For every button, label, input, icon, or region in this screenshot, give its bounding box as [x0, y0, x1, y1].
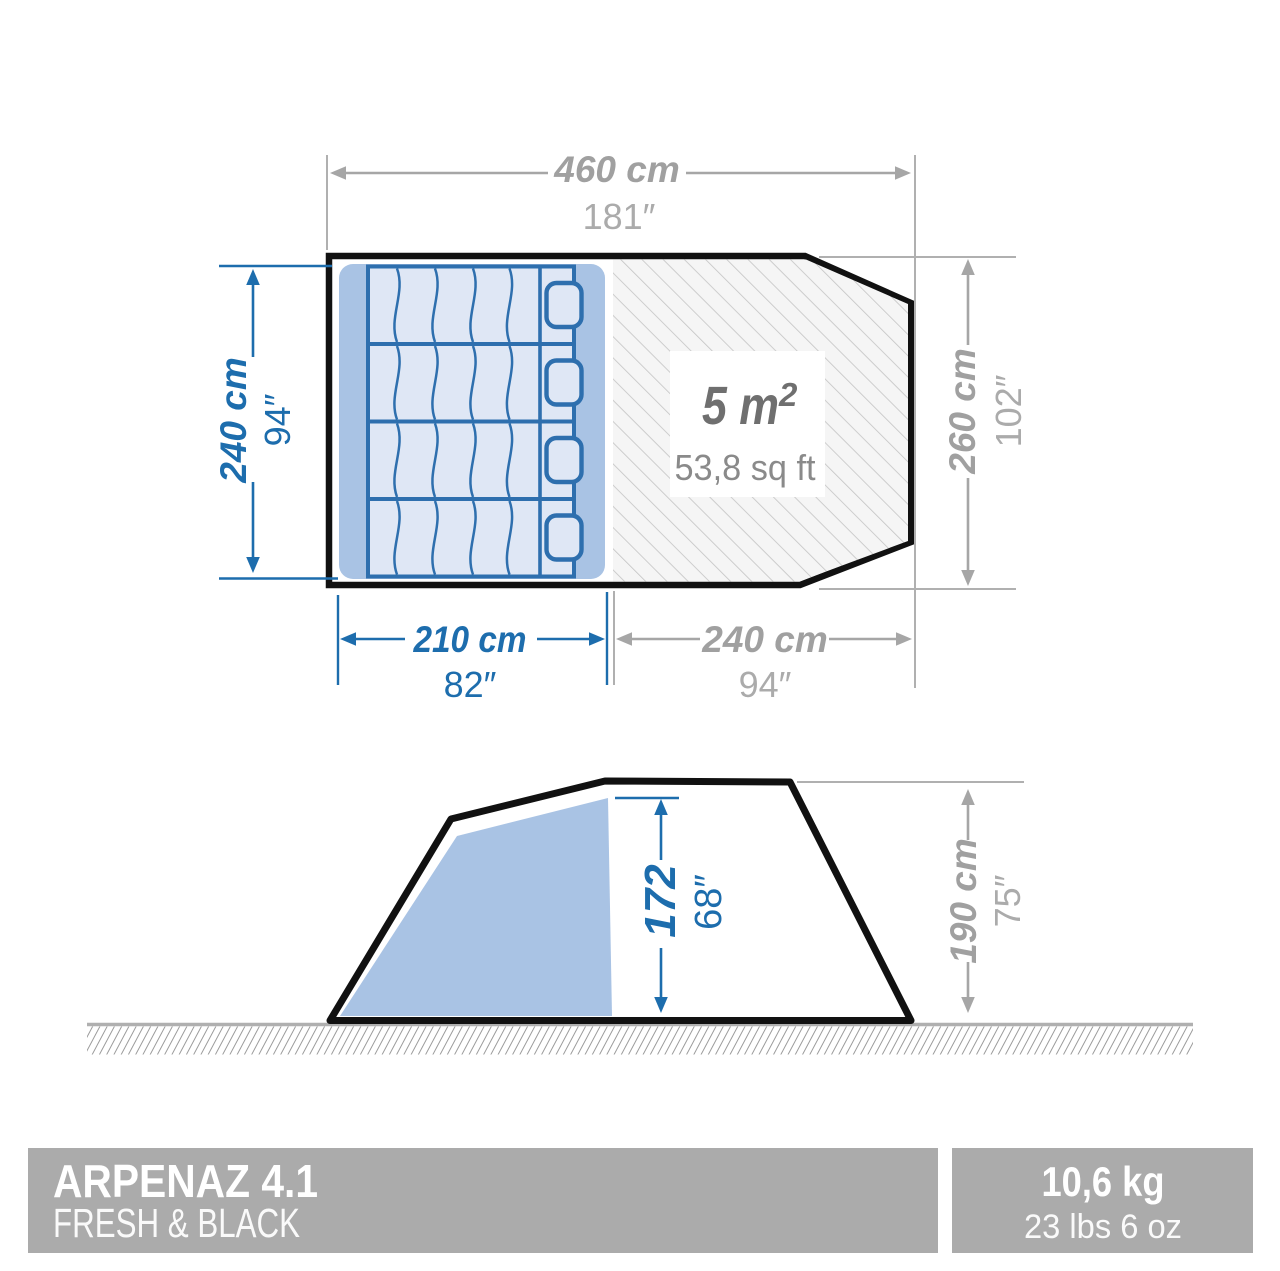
svg-text:53,8 sq ft: 53,8 sq ft	[675, 447, 816, 488]
svg-text:460 cm: 460 cm	[553, 149, 680, 190]
svg-text:181″: 181″	[583, 196, 656, 237]
svg-text:5 m: 5 m	[702, 376, 779, 436]
svg-text:2: 2	[778, 376, 798, 413]
svg-text:260 cm: 260 cm	[942, 348, 983, 475]
svg-text:75″: 75″	[987, 874, 1028, 927]
svg-text:82″: 82″	[444, 664, 497, 705]
svg-text:210 cm: 210 cm	[413, 619, 527, 660]
svg-text:240 cm: 240 cm	[213, 357, 254, 484]
svg-text:102″: 102″	[988, 374, 1029, 447]
svg-text:23 lbs 6 oz: 23 lbs 6 oz	[1024, 1208, 1182, 1246]
svg-text:240 cm: 240 cm	[701, 619, 828, 660]
svg-text:FRESH & BLACK: FRESH & BLACK	[53, 1200, 300, 1246]
svg-text:94″: 94″	[257, 393, 298, 446]
svg-text:10,6 kg: 10,6 kg	[1042, 1158, 1165, 1205]
svg-text:94″: 94″	[739, 664, 792, 705]
svg-text:172: 172	[636, 864, 685, 938]
svg-text:190 cm: 190 cm	[943, 838, 984, 964]
svg-text:68″: 68″	[688, 874, 730, 930]
